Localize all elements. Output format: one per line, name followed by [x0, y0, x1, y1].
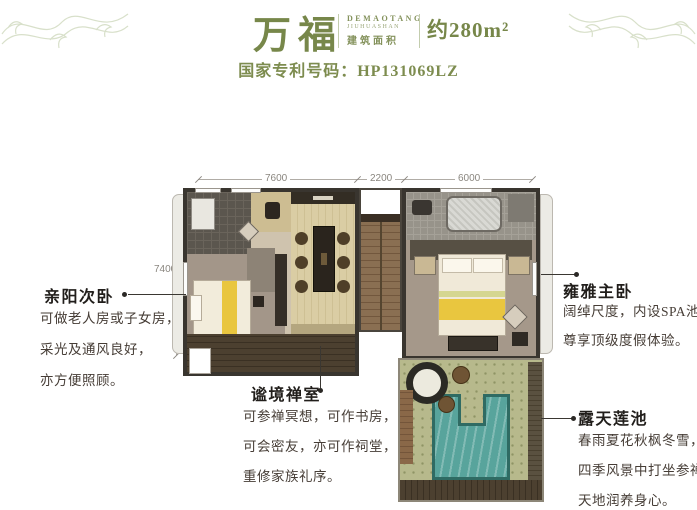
leader-dot	[571, 416, 576, 421]
table-detail	[321, 253, 327, 265]
desc-line: 可参禅冥想，可作书房，	[243, 405, 397, 425]
window	[195, 188, 221, 193]
desc-lotus-pond: 春雨夏花秋枫冬雪， 四季风景中打坐参禅， 天地润养身心。	[578, 429, 697, 509]
planter-pot	[452, 366, 470, 384]
desc-line: 春雨夏花秋枫冬雪，	[578, 429, 697, 449]
brand-subname: JIUHUASHAN	[347, 24, 423, 30]
header-divider-1	[338, 14, 339, 48]
nightstand-right	[508, 256, 530, 275]
label-zen-room: 谧境禅室	[251, 381, 321, 405]
cushion	[337, 232, 350, 245]
side-cabinet	[512, 332, 528, 346]
leader-master-bedroom	[541, 274, 575, 275]
bathtub	[446, 196, 502, 232]
shower-master	[508, 194, 534, 222]
pillow	[473, 258, 503, 273]
cushion	[295, 256, 308, 269]
desc-line: 可做老人房或子女房，	[40, 307, 180, 327]
courtyard	[398, 358, 544, 502]
leader-lotus-pond	[541, 418, 573, 419]
floorplan-page: 万福 DEMAOTANG JIUHUASHAN 建筑面积 约280m² 国家专利…	[0, 0, 697, 510]
page-title: 万福	[253, 4, 343, 59]
label-secondary-bedroom: 亲阳次卧	[44, 283, 114, 307]
cushion	[337, 280, 350, 293]
header-divider-2	[419, 14, 420, 48]
bed-secondary	[193, 280, 251, 336]
desc-line: 阔绰尺度，内设SPA池，	[563, 300, 697, 320]
building-right	[402, 188, 540, 360]
vanity	[412, 200, 432, 215]
courtyard-deck-bottom	[400, 480, 542, 500]
cushion	[295, 280, 308, 293]
label-master-bedroom: 雍雅主卧	[563, 278, 633, 302]
shower	[191, 198, 215, 230]
cushion	[295, 232, 308, 245]
desc-line: 重修家族礼序。	[243, 465, 397, 485]
stair-rail	[380, 222, 382, 330]
building-left	[183, 188, 359, 376]
pillows	[190, 295, 202, 321]
brand-block: DEMAOTANG JIUHUASHAN 建筑面积	[347, 15, 423, 47]
corner-ornament-right	[567, 0, 697, 62]
rug	[247, 248, 275, 292]
desc-line: 可会密友，亦可作祠堂，	[243, 435, 397, 455]
area-value: 约280m²	[427, 14, 509, 44]
patent-number: 国家专利号码：HP131069LZ	[0, 57, 697, 81]
leader-secondary-bedroom	[128, 294, 186, 295]
desc-line: 采光及通风良好，	[40, 338, 180, 358]
area-label: 建筑面积	[347, 37, 423, 47]
courtyard-deck-right	[528, 362, 542, 480]
corner-ornament-left	[0, 0, 130, 62]
nightstand-left	[414, 256, 436, 275]
bed-bench	[448, 336, 498, 351]
altar-cabinet	[291, 192, 355, 204]
stair-landing	[361, 214, 400, 222]
window	[231, 188, 261, 193]
dim-tick	[529, 176, 536, 183]
desc-secondary-bedroom: 可做老人房或子女房， 采光及通风良好， 亦方便照顾。	[40, 307, 180, 389]
nightstand	[253, 296, 264, 307]
dim-label-7600: 7600	[262, 173, 290, 185]
dim-label-6000: 6000	[455, 173, 483, 185]
window	[440, 188, 492, 193]
wardrobe	[275, 254, 287, 326]
bed-runner-master	[439, 299, 505, 320]
dim-label-2200: 2200	[367, 173, 395, 185]
bed-master	[438, 254, 506, 336]
entry-step	[189, 348, 211, 374]
stool	[265, 202, 280, 219]
leader-dot	[574, 272, 579, 277]
cushion	[337, 256, 350, 269]
planter-pot	[438, 396, 455, 413]
desc-line: 天地润养身心。	[578, 489, 697, 509]
window	[532, 262, 537, 296]
leader-dot	[122, 292, 127, 297]
desc-line: 四季风景中打坐参禅，	[578, 459, 697, 479]
window	[183, 262, 188, 296]
desc-line: 尊享顶级度假体验。	[563, 329, 697, 349]
brand-name: DEMAOTANG	[347, 15, 423, 23]
desc-master-bedroom: 阔绰尺度，内设SPA池， 尊享顶级度假体验。	[563, 300, 697, 349]
desc-line: 亦方便照顾。	[40, 369, 180, 389]
label-lotus-pond: 露天莲池	[578, 405, 648, 429]
bed-accent-stripe	[439, 291, 505, 297]
tea-table	[313, 226, 335, 292]
pond-platform	[458, 394, 486, 426]
pillow	[442, 258, 472, 273]
desc-zen-room: 可参禅冥想，可作书房， 可会密友，亦可作祠堂， 重修家族礼序。	[243, 405, 397, 485]
garden-bench	[400, 390, 413, 464]
bed-runner	[222, 281, 237, 335]
stair-hall	[359, 188, 402, 332]
deck-left-building	[187, 334, 355, 372]
altar-detail	[313, 196, 333, 200]
lounge-chair	[502, 304, 527, 329]
